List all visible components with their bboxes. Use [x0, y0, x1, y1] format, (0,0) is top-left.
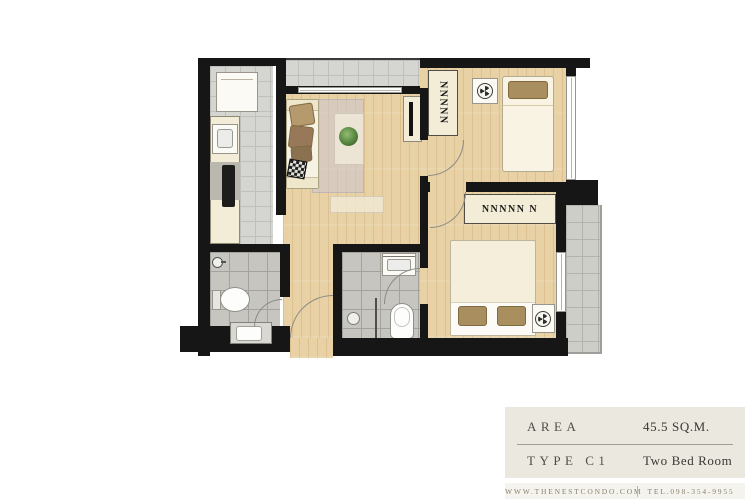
wall-bath1-right-upper: [280, 244, 290, 297]
bedroom1-pillow: [508, 81, 548, 99]
bedroom1-duvet-fold: [503, 105, 553, 106]
panel-divider: [517, 444, 733, 445]
balcony-floor: [566, 205, 602, 354]
bedroom1-wardrobe: NNNNN: [428, 70, 458, 136]
wall-bottom-main: [333, 338, 568, 356]
wall-bath2-top: [335, 244, 428, 252]
wall-hall-bath2-upper: [420, 192, 428, 268]
bedroom2-wardrobe-hanger-marks: NNNNN N: [482, 204, 538, 215]
side-table: [330, 196, 384, 213]
kitchen-floor: [240, 116, 273, 244]
stove: [222, 165, 235, 207]
footer-bar: WWW.THENESTCONDO.COM TEL.098-354-9955: [505, 483, 745, 499]
toilet1-bowl: [220, 287, 250, 312]
wall-bedroom1-master-right: [466, 182, 566, 192]
pattern-pillow: [287, 159, 308, 180]
balcony-sliding-door: [556, 252, 566, 312]
area-value: 45.5 SQ.M.: [643, 419, 710, 435]
wall-bath2-left: [333, 244, 342, 343]
wall-living-bedroom1: [420, 88, 428, 140]
bathroom2-sink-shelf: [383, 256, 415, 257]
entrance-recess-floor: [290, 338, 333, 358]
potted-plant-icon: [339, 127, 358, 146]
bedroom1-wardrobe-hanger-marks: NNNNN: [438, 81, 449, 125]
info-panel: AREA 45.5 SQ.M. TYPE C1 Two Bed Room: [505, 407, 745, 478]
washing-machine: [216, 72, 258, 112]
wall-kitchen-right: [276, 58, 286, 215]
bedroom2-pillow-right: [497, 306, 526, 326]
wall-master-right-lower: [556, 312, 566, 356]
shower-divider: [375, 298, 377, 338]
bedroom2-pillow-left: [458, 306, 487, 326]
phone-text: TEL.098-354-9955: [638, 487, 744, 496]
floor-drain: [347, 312, 360, 325]
wall-bath1-top: [210, 244, 290, 252]
wall-master-right-upper: [556, 192, 566, 252]
kitchen-sink: [212, 124, 238, 154]
shower-stem: [221, 261, 226, 263]
bathroom1-sink-basin2: [236, 326, 262, 341]
wall-bedroom1-master-left: [420, 182, 430, 192]
wall-top-left: [198, 58, 285, 66]
toilet2: [390, 303, 414, 339]
area-label: AREA: [527, 419, 580, 435]
website-text: WWW.THENESTCONDO.COM: [505, 487, 637, 496]
wall-window-post-top: [566, 68, 576, 76]
washer-lid-line: [221, 79, 253, 80]
bedroom2-wardrobe: NNNNN N: [464, 194, 556, 224]
bedroom1-window: [566, 76, 576, 180]
wall-left-outer: [198, 58, 210, 356]
tv: [409, 102, 413, 136]
ceiling-fan-icon-bedroom1: [477, 83, 493, 99]
wall-hall-bath2-lower: [420, 304, 428, 338]
sink-basin: [217, 129, 233, 148]
ceiling-fan-icon-bedroom2: [535, 311, 551, 327]
living-window: [298, 87, 402, 93]
wall-top-right: [420, 58, 590, 68]
toilet2-seat: [394, 307, 410, 327]
type-value: Two Bed Room: [643, 453, 732, 469]
floorplan-page: NNNNN NNNNN N: [0, 0, 750, 500]
type-label: TYPE C1: [527, 453, 609, 469]
wall-balcony-top-block: [566, 180, 598, 205]
